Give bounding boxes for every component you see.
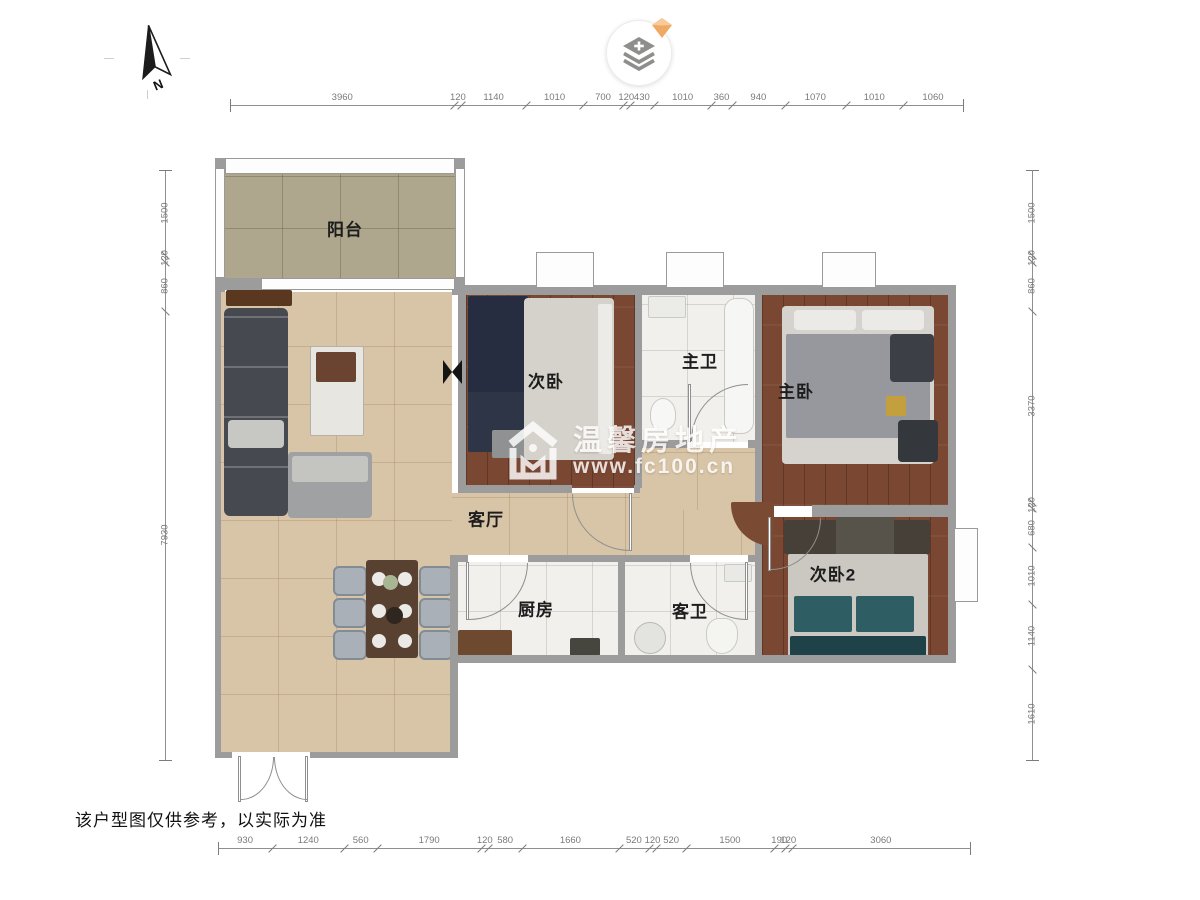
dimension-tick (899, 101, 907, 109)
dimension-value: 120 (780, 835, 796, 846)
window (215, 168, 225, 278)
wardrobe (468, 296, 528, 394)
window (822, 252, 876, 288)
dimension-tick (781, 101, 789, 109)
room-label-master-bath: 主卫 (682, 348, 718, 373)
compass-tick (104, 58, 114, 59)
dimension-tick (842, 101, 850, 109)
dimension-value: 1140 (1027, 626, 1038, 646)
entry-door-arc (274, 757, 307, 800)
dimension-value: 580 (497, 835, 513, 846)
room-label-balcony: 阳台 (327, 216, 363, 241)
dimension-value: 1500 (719, 835, 740, 846)
chaise-cushion (292, 456, 368, 482)
wall (458, 485, 572, 493)
dimension-tick (1028, 307, 1036, 315)
dimension-tick (1028, 543, 1036, 551)
dimension-value: 1610 (1027, 704, 1038, 725)
room-label-guest-bath: 客卫 (672, 598, 708, 623)
toilet (650, 398, 676, 430)
armchair (898, 420, 938, 462)
dimension-value: 1500 (1027, 202, 1038, 223)
dimension-value: 1140 (483, 92, 503, 103)
wall (215, 292, 221, 758)
dimension-tick (1026, 170, 1039, 171)
dimension-value: 1500 (160, 202, 171, 223)
room-label-bedroom-2: 次卧 (528, 368, 564, 393)
window (954, 528, 978, 602)
dining-chair (419, 566, 453, 596)
wall (748, 555, 755, 562)
dimension-value: 1010 (672, 92, 693, 103)
dining-chair (333, 630, 367, 660)
floorplan-page: N (0, 0, 1200, 900)
washer (634, 622, 666, 654)
dimension-tick (341, 844, 349, 852)
plate (398, 572, 412, 586)
dimension-line-right: 15001208603370120680101011401610 (1032, 170, 1033, 760)
dimension-value: 360 (714, 92, 730, 103)
bed-pillow (856, 596, 914, 632)
dimension-value: 860 (160, 278, 171, 294)
plate (372, 604, 386, 618)
compass-north-letter: N (151, 76, 165, 93)
wall (812, 505, 948, 517)
dimension-value: 1070 (805, 92, 826, 103)
coffee-table-tray (316, 352, 356, 382)
dimension-tick (268, 844, 276, 852)
room-label-bedroom-3: 次卧2 (810, 561, 856, 586)
dimension-line-left: 15001208607930 (165, 170, 166, 760)
sink (648, 296, 686, 318)
dimension-tick (683, 844, 691, 852)
disclaimer-text: 该户型图仅供参考，以实际为准 (75, 806, 327, 831)
wall (458, 285, 466, 493)
dimension-value: 7930 (160, 525, 171, 546)
dimension-value: 3960 (332, 92, 353, 103)
dimension-tick (1028, 600, 1036, 608)
dining-chair (333, 598, 367, 628)
wall (455, 655, 956, 663)
floor-hallway (640, 448, 755, 510)
window (536, 252, 594, 288)
wall (458, 555, 468, 562)
dimension-tick (218, 842, 219, 855)
dimension-value: 860 (1027, 278, 1038, 294)
dimension-value: 520 (626, 835, 642, 846)
dimension-value: 1010 (544, 92, 565, 103)
toilet (706, 618, 738, 654)
wall (755, 292, 762, 518)
wall (748, 440, 755, 448)
wall (528, 555, 690, 562)
room-label-master-bedroom: 主卧 (778, 378, 814, 403)
wall (215, 752, 232, 758)
bed-pillow (862, 310, 924, 330)
dimension-value: 3060 (870, 835, 891, 846)
sofa (224, 308, 288, 516)
dining-chair (419, 598, 453, 628)
layers-button[interactable] (606, 20, 672, 86)
dimension-value: 1660 (560, 835, 581, 846)
wall (221, 278, 261, 290)
dimension-tick (970, 842, 971, 855)
dimension-tick (1026, 760, 1039, 761)
room-label-living-room: 客厅 (468, 506, 504, 531)
wall (948, 292, 956, 663)
window (455, 168, 465, 278)
wall (635, 292, 642, 488)
dimension-value: 940 (750, 92, 766, 103)
dimension-tick (230, 99, 231, 112)
dimension-tick (963, 99, 964, 112)
dimension-value: 3370 (1027, 395, 1038, 416)
wall (310, 752, 458, 758)
wall (635, 440, 688, 448)
dining-chair (419, 630, 453, 660)
wall-post (455, 158, 465, 168)
plate (398, 634, 412, 648)
dimension-tick (159, 170, 172, 171)
dimension-tick (161, 307, 169, 315)
dimension-value: 1060 (922, 92, 943, 103)
wall-post (215, 158, 225, 168)
dimension-value: 1790 (419, 835, 440, 846)
plate (372, 634, 386, 648)
dimension-value: 430 (634, 92, 650, 103)
kitchen-counter (458, 630, 512, 656)
bed-pillow (794, 596, 852, 632)
door-symbol-icon (443, 358, 462, 386)
dimension-tick (159, 760, 172, 761)
dimension-value: 560 (353, 835, 369, 846)
dimension-value: 1010 (1027, 565, 1038, 586)
table-flower (383, 575, 398, 590)
dimension-tick (518, 844, 526, 852)
dimension-line-bottom: 9301240560179012058016605201205201500190… (218, 848, 970, 849)
dimension-value: 1010 (864, 92, 885, 103)
dimension-value: 930 (237, 835, 253, 846)
armchair (890, 334, 934, 382)
dimension-line-top: 3960120114010107001204301010360940107010… (230, 105, 963, 106)
wall (618, 562, 625, 655)
bed-pillow (598, 304, 612, 454)
diamond-badge-icon (651, 17, 673, 44)
window (225, 158, 455, 174)
wall-post (455, 278, 465, 292)
dimension-value: 120 (618, 92, 634, 103)
dimension-value: 700 (595, 92, 611, 103)
dimension-tick (522, 101, 530, 109)
dimension-value: 520 (663, 835, 679, 846)
dimension-value: 680 (1027, 520, 1038, 536)
dimension-tick (373, 844, 381, 852)
table-bowl (386, 607, 403, 624)
dimension-tick (1028, 665, 1036, 673)
dimension-tick (650, 101, 658, 109)
sofa-throw (228, 420, 284, 448)
window (261, 278, 455, 290)
lamp (886, 396, 906, 416)
dimension-tick (579, 101, 587, 109)
north-compass-icon: N (118, 20, 188, 103)
window (666, 252, 724, 288)
room-label-kitchen: 厨房 (518, 596, 554, 621)
entry-door-arc (241, 757, 274, 800)
dimension-value: 1240 (298, 835, 319, 846)
tv-cabinet (226, 290, 292, 306)
dining-chair (333, 566, 367, 596)
bed-pillow (794, 310, 856, 330)
dimension-tick (615, 844, 623, 852)
stove (570, 638, 600, 656)
